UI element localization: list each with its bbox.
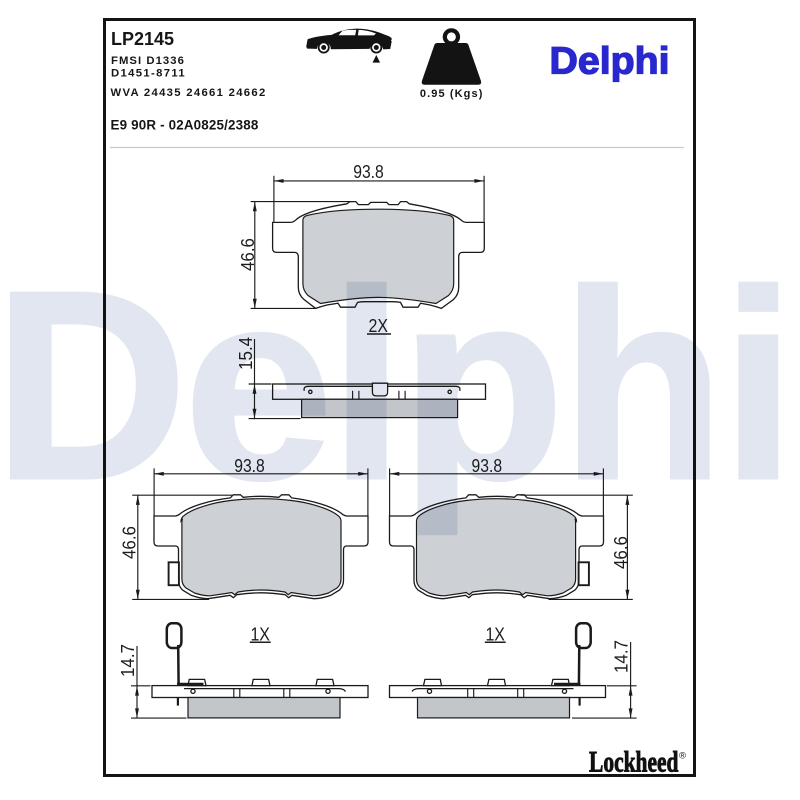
svg-text:14.7: 14.7: [118, 644, 138, 677]
svg-text:D1451-8711: D1451-8711: [111, 68, 186, 80]
svg-text:14.7: 14.7: [612, 640, 632, 673]
svg-text:46.6: 46.6: [611, 536, 631, 569]
svg-text:93.8: 93.8: [353, 162, 384, 182]
svg-text:1X: 1X: [485, 624, 505, 644]
svg-text:0.95 (Kgs): 0.95 (Kgs): [420, 88, 484, 100]
svg-text:Delphi: Delphi: [0, 235, 792, 537]
svg-text:WVA 24435 24661 24662: WVA 24435 24661 24662: [111, 87, 267, 99]
svg-text:LP2145: LP2145: [111, 29, 174, 49]
svg-text:Delphi: Delphi: [550, 40, 670, 82]
svg-text:1X: 1X: [250, 624, 270, 644]
svg-text:FMSI D1336: FMSI D1336: [111, 55, 185, 67]
svg-text:E9 90R - 02A0825/2388: E9 90R - 02A0825/2388: [111, 118, 259, 133]
svg-text:®: ®: [679, 751, 686, 762]
svg-text:Lockheed: Lockheed: [589, 746, 679, 778]
